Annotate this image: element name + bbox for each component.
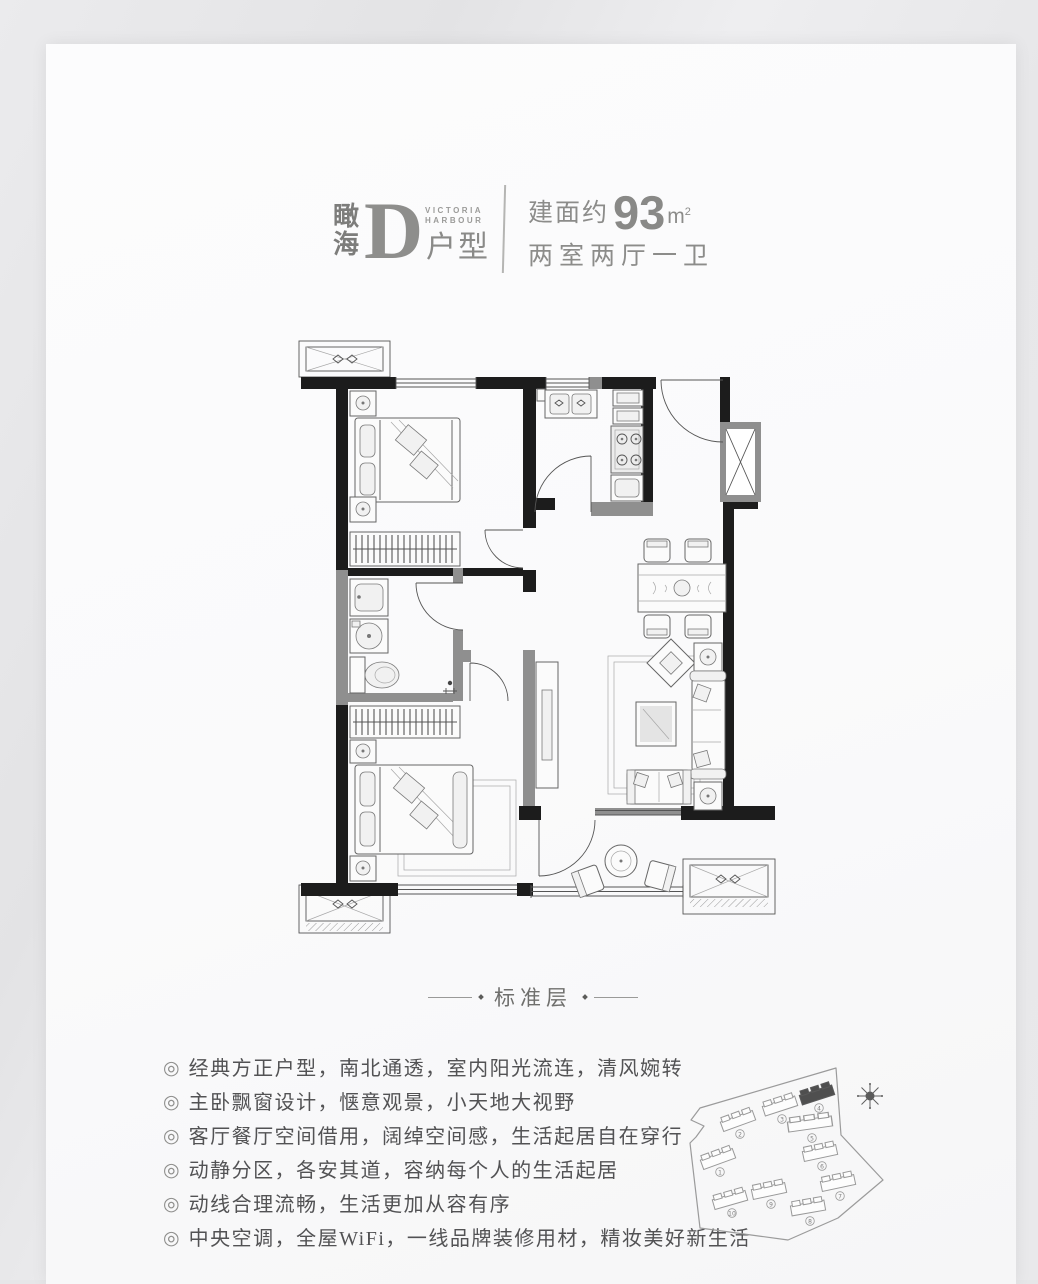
feature-list: ◎ 经典方正户型，南北通透，室内阳光流连，清风婉转 ◎ 主卧飘窗设计，惬意观景，… [163, 1058, 751, 1262]
site-building-7: 7 [820, 1171, 856, 1201]
bed [355, 418, 460, 502]
balcony-furniture [571, 845, 676, 898]
svg-text:2: 2 [738, 1131, 742, 1138]
svg-text:7: 7 [838, 1193, 842, 1200]
area-value: 93 [613, 192, 665, 234]
dining-chair [685, 539, 711, 562]
washing-machine [350, 619, 388, 653]
feature-item: ◎ 主卧飘窗设计，惬意观景，小天地大视野 [163, 1092, 751, 1114]
kitchen-sink [545, 390, 597, 418]
tv-cabinet [536, 662, 558, 788]
feature-item: ◎ 动线合理流畅，生活更加从容有序 [163, 1194, 751, 1216]
site-building-10: 10 [711, 1187, 748, 1218]
living-room-furniture [536, 639, 726, 810]
dining-chair [685, 615, 711, 638]
area-unit: m2 [667, 205, 691, 234]
sofa [690, 671, 726, 779]
svg-text:9: 9 [769, 1201, 773, 1208]
side-table [694, 643, 722, 671]
dining-table [638, 564, 726, 612]
dining-chair [644, 539, 670, 562]
svg-text:5: 5 [810, 1135, 814, 1142]
unit-type-letter: D [364, 196, 423, 266]
brand-en-line1: VICTORIA [425, 206, 483, 216]
wardrobe [350, 532, 460, 566]
site-building-2: 2 [719, 1107, 756, 1139]
svg-text:4: 4 [817, 1105, 821, 1112]
feature-item: ◎ 客厅餐厅空间借用，阔绰空间感，生活起居自在穿行 [163, 1126, 751, 1148]
dining-chair [644, 615, 670, 638]
kitchen-fixtures [537, 389, 643, 501]
bullet-icon: ◎ [163, 1126, 180, 1148]
site-building-8: 8 [790, 1196, 826, 1225]
nightstand [350, 740, 376, 763]
nightstand [350, 856, 376, 881]
loveseat [627, 770, 691, 804]
site-building-6: 6 [802, 1141, 838, 1171]
svg-text:8: 8 [808, 1218, 812, 1225]
feature-item: ◎ 经典方正户型，南北通透，室内阳光流连，清风婉转 [163, 1058, 751, 1080]
site-building-5: 5 [787, 1112, 833, 1142]
bullet-icon: ◎ [163, 1058, 180, 1080]
bullet-icon: ◎ [163, 1194, 180, 1216]
svg-text:6: 6 [820, 1163, 824, 1170]
compass-icon [857, 1083, 883, 1109]
bullet-icon: ◎ [163, 1228, 180, 1250]
plan-caption: 标准层 [403, 982, 663, 1012]
stove [611, 426, 643, 473]
bedroom1-furniture [350, 391, 460, 566]
svg-text:1: 1 [718, 1169, 722, 1176]
bathroom-sink [350, 579, 388, 616]
caption-line-left [428, 997, 472, 998]
dining-furniture [638, 539, 726, 638]
floor-plan [293, 338, 788, 938]
svg-text:3: 3 [780, 1116, 784, 1123]
wardrobe [350, 706, 460, 738]
balcony-chair [571, 864, 604, 897]
site-building-4-highlighted: 4 [798, 1081, 835, 1112]
bathroom-fixtures [350, 579, 457, 694]
caption-dot-left [478, 994, 484, 1000]
site-building-9: 9 [751, 1179, 787, 1209]
site-building-1: 1 [699, 1145, 736, 1177]
area-label: 建面约 [528, 193, 609, 234]
bullet-icon: ◎ [163, 1092, 180, 1114]
nightstand [350, 391, 376, 416]
brand-name-cn: 瞰海 [333, 202, 363, 258]
bay-window-bottom-right [683, 859, 775, 914]
toilet [350, 657, 399, 693]
caption-text: 标准层 [490, 982, 576, 1012]
caption-line-right [594, 997, 638, 998]
caption-dot-right [582, 994, 588, 1000]
nightstand [350, 497, 376, 522]
side-table [694, 782, 722, 810]
master-bedroom-furniture [350, 706, 516, 881]
photo-background: 瞰海 D VICTORIA HARBOUR 户型 建面约 93 m2 两室两厅一… [0, 0, 1038, 1280]
site-plan: 1 2 3 4 5 6 7 8 [683, 1060, 918, 1270]
armchair [647, 639, 695, 687]
coffee-table [636, 702, 676, 746]
bed [355, 765, 473, 854]
balcony-table [605, 845, 637, 877]
area-info: 建面约 93 m2 [528, 192, 691, 234]
bay-window-top-left [299, 341, 390, 377]
feature-item: ◎ 中央空调，全屋WiFi，一线品牌装修用材，精妆美好新生活 [163, 1228, 751, 1250]
bullet-icon: ◎ [163, 1160, 180, 1182]
unit-type-suffix: 户型 [426, 222, 490, 266]
feature-item: ◎ 动静分区，各安其道，容纳每个人的生活起居 [163, 1160, 751, 1182]
svg-text:10: 10 [728, 1210, 736, 1217]
room-layout-text: 两室两厅一卫 [528, 236, 714, 272]
